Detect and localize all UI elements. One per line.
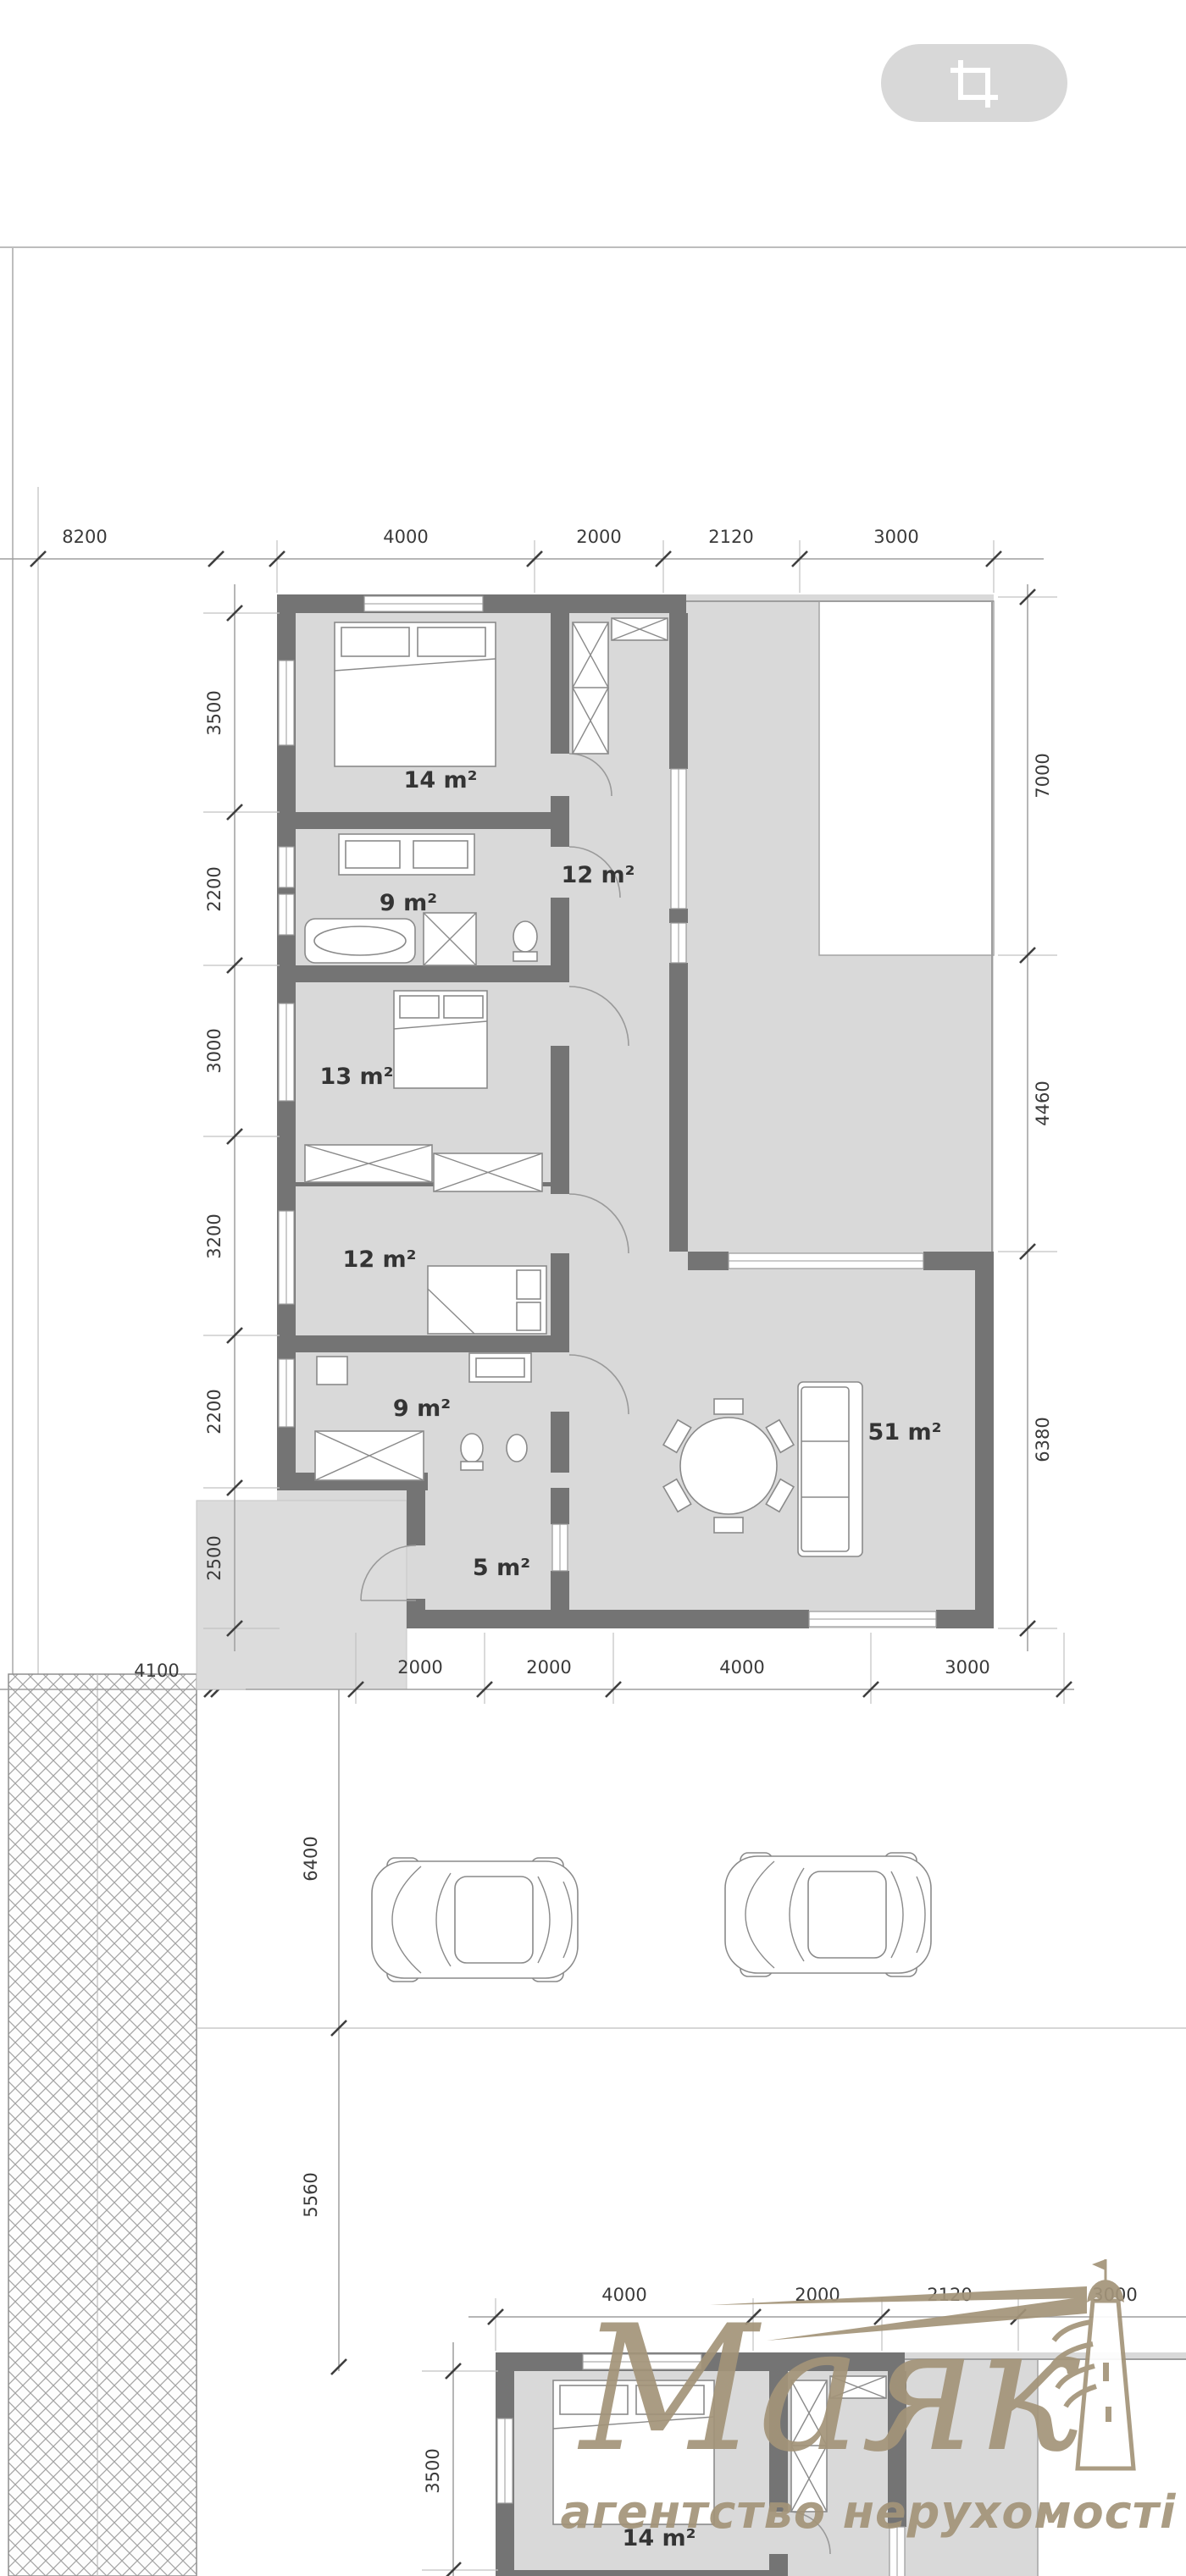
dim-top-3000: 3000 xyxy=(873,527,918,547)
watermark-brand: Маяк xyxy=(577,2289,1081,2490)
room-label-bedroom1: 14 m² xyxy=(404,767,478,793)
double-bed-icon xyxy=(335,622,496,766)
room-label-bath1: 9 m² xyxy=(380,890,437,916)
carport-area xyxy=(819,601,994,955)
dim-bottom-4000: 4000 xyxy=(719,1657,764,1678)
dim-left-3500: 3500 xyxy=(204,690,224,735)
double-bed-icon-3 xyxy=(428,1266,546,1334)
bidet-icon xyxy=(507,1434,527,1462)
dim-left-3200: 3200 xyxy=(204,1213,224,1258)
room-label-bath2: 9 m² xyxy=(393,1396,451,1422)
car-2 xyxy=(725,1853,931,1976)
dim-bottom-3000: 3000 xyxy=(945,1657,989,1678)
dims-top: 4000 2000 2120 3000 xyxy=(250,527,1044,593)
dim-left-3000: 3000 xyxy=(204,1028,224,1073)
dims-right: 7000 4460 6380 xyxy=(998,584,1057,1651)
dim-right-4460: 4460 xyxy=(1033,1081,1053,1125)
room-label-entry: 5 m² xyxy=(473,1555,530,1581)
room-label-hall: 12 m² xyxy=(562,862,635,888)
dim-right-7000: 7000 xyxy=(1033,753,1053,798)
double-bed-icon-2 xyxy=(394,991,487,1088)
screenshot-page: 8200 4100 6400 5560 xyxy=(0,0,1186,2576)
watermark-tagline: агентство нерухомості xyxy=(560,2485,1177,2539)
car-1 xyxy=(372,1858,578,1982)
dim-top-4000: 4000 xyxy=(383,527,428,547)
dims-left: 3500 2200 3000 3200 2200 2500 xyxy=(203,584,280,1651)
floor-plan: 14 m² 12 m² 9 m² 13 m² 12 m² 9 m² 5 m² 5… xyxy=(197,527,1074,1704)
toilet-icon xyxy=(513,921,537,952)
room-label-bedroom3: 12 m² xyxy=(343,1247,417,1273)
dim-site-4100: 4100 xyxy=(134,1661,179,1681)
dim-bottom-2000a: 2000 xyxy=(397,1657,442,1678)
dim-bottom-2000b: 2000 xyxy=(526,1657,571,1678)
dim-top-2120: 2120 xyxy=(708,527,753,547)
dim-top-8200: 8200 xyxy=(62,527,107,547)
room-label-bedroom2: 13 m² xyxy=(320,1064,394,1090)
dim-top-2000: 2000 xyxy=(576,527,621,547)
floor-plan-canvas: 8200 4100 6400 5560 xyxy=(0,0,1186,2576)
dim-right-6380: 6380 xyxy=(1033,1417,1053,1462)
sofa-icon xyxy=(798,1382,862,1556)
patio-outside xyxy=(197,1501,407,1689)
dim-site-6400: 6400 xyxy=(301,1836,321,1881)
crop-button[interactable] xyxy=(881,44,1067,122)
dim-site-5560: 5560 xyxy=(301,2172,321,2217)
watermark: Маяк агентство нерухомості xyxy=(560,2259,1177,2539)
dim-left-2200a: 2200 xyxy=(204,866,224,911)
room-label-living: 51 m² xyxy=(868,1419,942,1446)
dim-left-2500: 2500 xyxy=(204,1535,224,1580)
hatched-plot-area xyxy=(8,1674,197,2576)
dim-left-2200b: 2200 xyxy=(204,1389,224,1434)
toilet-icon-2 xyxy=(461,1434,483,1462)
